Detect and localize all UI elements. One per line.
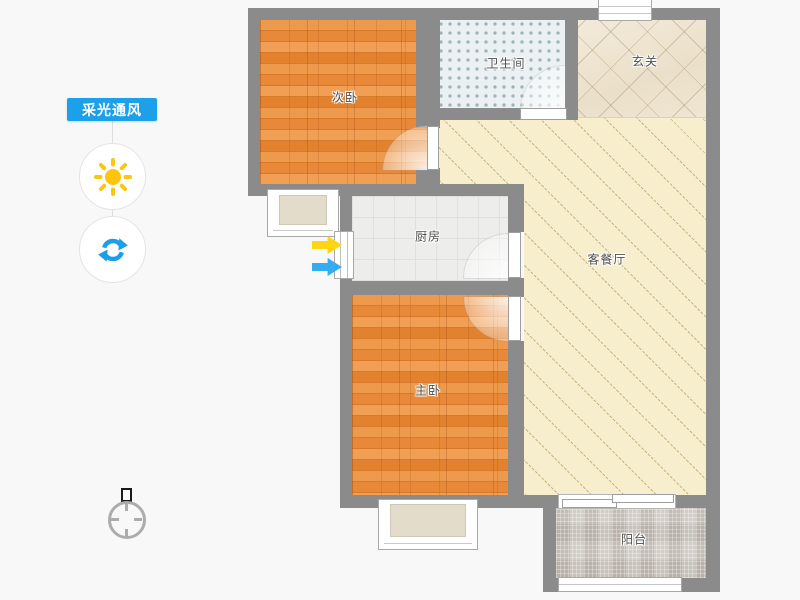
room-label-entry-hall: 玄关	[632, 53, 658, 70]
compass-tick	[111, 518, 119, 521]
door-leaf	[508, 232, 521, 278]
wall-kitchen-bedroom	[340, 281, 524, 295]
room-label-kitchen: 厨房	[415, 228, 441, 245]
wall-kitchen-right-upper	[508, 184, 524, 232]
wall-living-bottom-right	[673, 495, 706, 508]
rotate-button[interactable]	[79, 216, 146, 283]
room-label-secondary-bedroom: 次卧	[332, 89, 358, 106]
floorplan-canvas: 次卧 卫生间 玄关 厨房 客餐厅 主卧 阳台 采光通风	[0, 0, 800, 600]
bay-window	[267, 189, 339, 237]
door-leaf	[427, 126, 439, 170]
door-leaf	[520, 108, 567, 120]
bay-window-line	[273, 230, 333, 231]
bay-window-sill	[279, 195, 327, 225]
sliding-door-panel	[562, 499, 617, 508]
bay-window-line	[384, 543, 472, 544]
bay-window-sill	[390, 504, 466, 537]
rotate-icon	[95, 232, 131, 268]
balcony-window	[558, 577, 682, 592]
sun-icon	[93, 157, 133, 197]
room-label-bathroom: 卫生间	[486, 55, 525, 72]
wall-bedroom2-right-lower	[416, 168, 440, 196]
room-label-master-bedroom: 主卧	[415, 382, 441, 399]
kitchen-window	[334, 231, 354, 279]
daylight-button[interactable]	[79, 143, 146, 210]
compass-tick	[125, 503, 128, 511]
wall-left	[248, 8, 260, 196]
wall-bedroom-right-lower	[508, 341, 524, 495]
north-flag-icon	[121, 488, 132, 502]
wall-kitchen-right-mid	[508, 278, 524, 297]
wall-right	[706, 8, 720, 592]
room-label-balcony: 阳台	[621, 531, 647, 548]
door-leaf	[508, 296, 521, 341]
daylight-ventilation-tab[interactable]: 采光通风	[67, 98, 157, 121]
bay-window	[378, 499, 478, 550]
sliding-door-panel	[612, 494, 674, 503]
wall-bathroom-right	[565, 20, 578, 120]
entry-door	[598, 0, 652, 21]
compass-tick	[134, 518, 142, 521]
compass-tick	[125, 529, 128, 537]
room-label-living-dining: 客餐厅	[587, 251, 626, 268]
